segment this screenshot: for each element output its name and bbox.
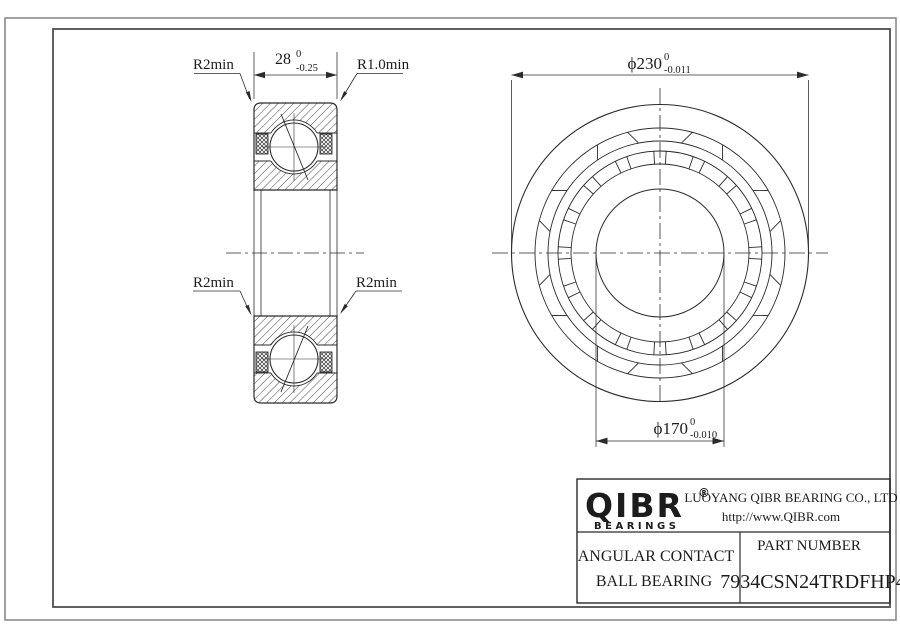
dim-arrow xyxy=(797,72,809,79)
cage-pocket-edge xyxy=(568,208,580,214)
cage-pocket-edge xyxy=(558,247,571,248)
cage-section-left-bottom xyxy=(256,352,268,372)
bearing-section-top xyxy=(254,103,337,190)
cage-section-right-top xyxy=(320,134,332,154)
cage-pocket-edge xyxy=(719,177,728,187)
cage-pocket-edge xyxy=(727,312,737,321)
radius-label-bottom-left: R2min xyxy=(193,275,234,291)
company-website: http://www.QIBR.com xyxy=(722,509,840,524)
bore-dim-tol-lower: -0.010 xyxy=(690,430,717,441)
cage-pocket-edge xyxy=(740,208,752,214)
cage-pocket-edge xyxy=(749,247,762,248)
cage-pocket-edge xyxy=(654,151,655,164)
leader-arrow xyxy=(340,304,348,314)
product-type-line1: ANGULAR CONTACT xyxy=(578,548,735,565)
bore-dim-tol-upper: 0 xyxy=(690,417,695,428)
leader-r2-bottom-left: R2min xyxy=(193,275,252,316)
cage-pocket-edge xyxy=(699,333,705,345)
drawing-canvas: 28 0 -0.25 R2min R1.0min R2min R2min xyxy=(0,0,900,636)
cage-section-left-top xyxy=(256,134,268,154)
cage-pocket-edge xyxy=(665,342,666,355)
cage-pocket-edge xyxy=(770,221,781,232)
outer-dim-value: ϕ230 xyxy=(628,54,662,73)
cage-pocket-edge xyxy=(770,274,781,285)
cage-pocket-edge xyxy=(744,220,756,224)
title-block: QIBR ® BEARINGS LUOYANG QIBR BEARING CO.… xyxy=(577,479,900,603)
cage-pocket-edge xyxy=(689,157,693,169)
cage-pocket-edge xyxy=(592,177,601,187)
cage-pocket-edge xyxy=(558,258,571,259)
cage-pocket-edge xyxy=(584,312,594,321)
leader-arrow xyxy=(245,305,251,316)
cage-pocket-edge xyxy=(654,342,655,355)
cage-section-right-bottom xyxy=(320,352,332,372)
cage-pocket-edge xyxy=(749,258,762,259)
cage-pocket-edge xyxy=(740,292,752,298)
cage-pocket-edge xyxy=(568,292,580,298)
drawing-sheet: 28 0 -0.25 R2min R1.0min R2min R2min xyxy=(0,0,900,636)
company-name: LUOYANG QIBR BEARING CO., LTD xyxy=(684,490,897,505)
product-type-line2: BALL BEARING xyxy=(596,573,713,590)
cage-pocket-edge xyxy=(615,161,621,173)
dim-arrow xyxy=(326,72,337,78)
cage-pocket-edge xyxy=(539,221,550,232)
width-dim-value: 28 xyxy=(275,51,291,68)
cage-pocket-edge xyxy=(681,363,692,374)
outer-dim-tol-upper: 0 xyxy=(664,52,669,63)
cage-pocket-edge xyxy=(719,320,728,330)
cage-pocket-edge xyxy=(615,333,621,345)
cage-pocket-edge xyxy=(584,185,594,194)
cage-pocket-edge xyxy=(744,282,756,286)
cage-pocket-edge xyxy=(539,274,550,285)
leader-r2-top-left: R2min xyxy=(193,57,252,102)
leader-arrow xyxy=(246,91,252,102)
dim-arrow xyxy=(254,72,265,78)
cage-pocket-edge xyxy=(564,220,576,224)
cage-pocket-edge xyxy=(628,132,639,143)
cage-pocket-edge xyxy=(699,161,705,173)
leader-r1-top-right: R1.0min xyxy=(340,57,410,102)
radius-label-top-right: R1.0min xyxy=(357,57,410,73)
dim-arrow xyxy=(596,438,608,445)
leader-arrow xyxy=(340,91,347,101)
bearing-section-bottom xyxy=(254,316,337,403)
cage-pocket-edge xyxy=(727,185,737,194)
cage-pocket-edge xyxy=(627,157,631,169)
cage-pocket-edge xyxy=(628,363,639,374)
width-dimension: 28 0 -0.25 xyxy=(254,49,337,99)
cage-pocket-edge xyxy=(665,151,666,164)
part-number-label: PART NUMBER xyxy=(757,538,861,554)
logo-text: QIBR xyxy=(585,486,684,525)
cage-pocket-edge xyxy=(564,282,576,286)
outer-dim-tol-lower: -0.011 xyxy=(664,65,691,76)
leader-r2-bottom-right: R2min xyxy=(340,275,402,314)
radius-label-bottom-right: R2min xyxy=(356,275,397,291)
cage-pocket-edge xyxy=(681,132,692,143)
cage-pocket-edge xyxy=(689,337,693,349)
cage-pocket-edge xyxy=(592,320,601,330)
part-number-value: 7934CSN24TRDFHP4 xyxy=(720,571,900,593)
radius-label-top-left: R2min xyxy=(193,57,234,73)
bore-dim-value: ϕ170 xyxy=(654,419,688,438)
width-dim-tol-upper: 0 xyxy=(296,49,301,60)
section-view: 28 0 -0.25 R2min R1.0min R2min R2min xyxy=(193,49,410,403)
cage-pocket-edge xyxy=(627,337,631,349)
dim-arrow xyxy=(512,72,524,79)
logo-subtitle: BEARINGS xyxy=(594,521,679,532)
sheet-edge xyxy=(5,18,896,620)
front-view: ϕ230 0 -0.011 ϕ170 0 -0.010 xyxy=(492,52,828,447)
width-dim-tol-lower: -0.25 xyxy=(296,63,318,74)
